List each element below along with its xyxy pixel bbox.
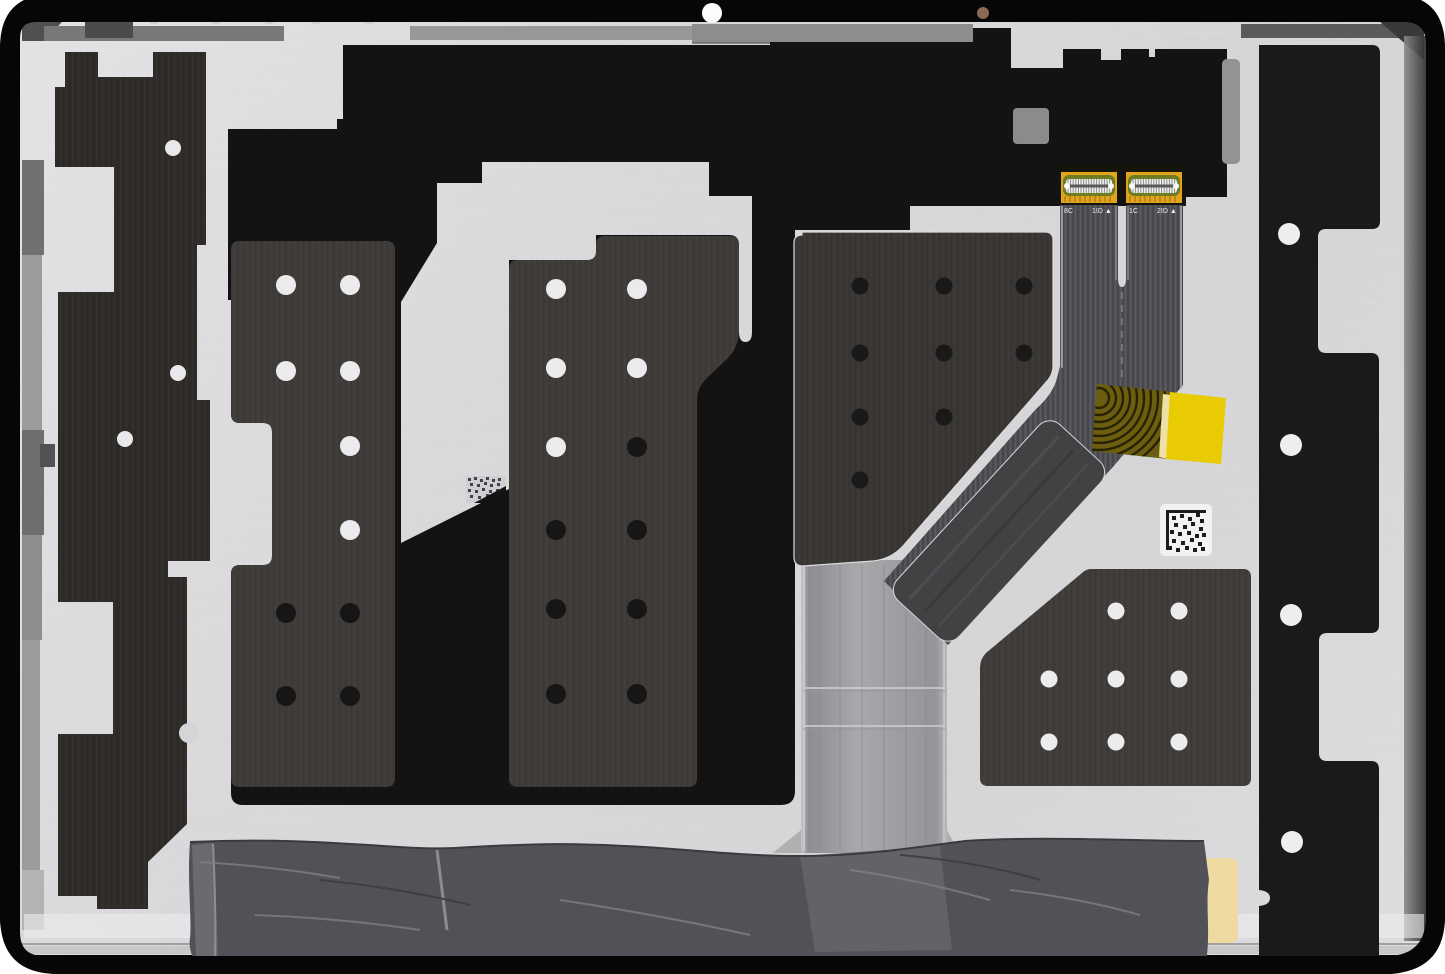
svg-text:8C: 8C [1064, 208, 1073, 215]
svg-text:1ID ▲: 1ID ▲ [1092, 208, 1112, 215]
svg-text:2ID ▲: 2ID ▲ [1157, 208, 1177, 215]
svg-text:1C: 1C [1129, 208, 1138, 215]
